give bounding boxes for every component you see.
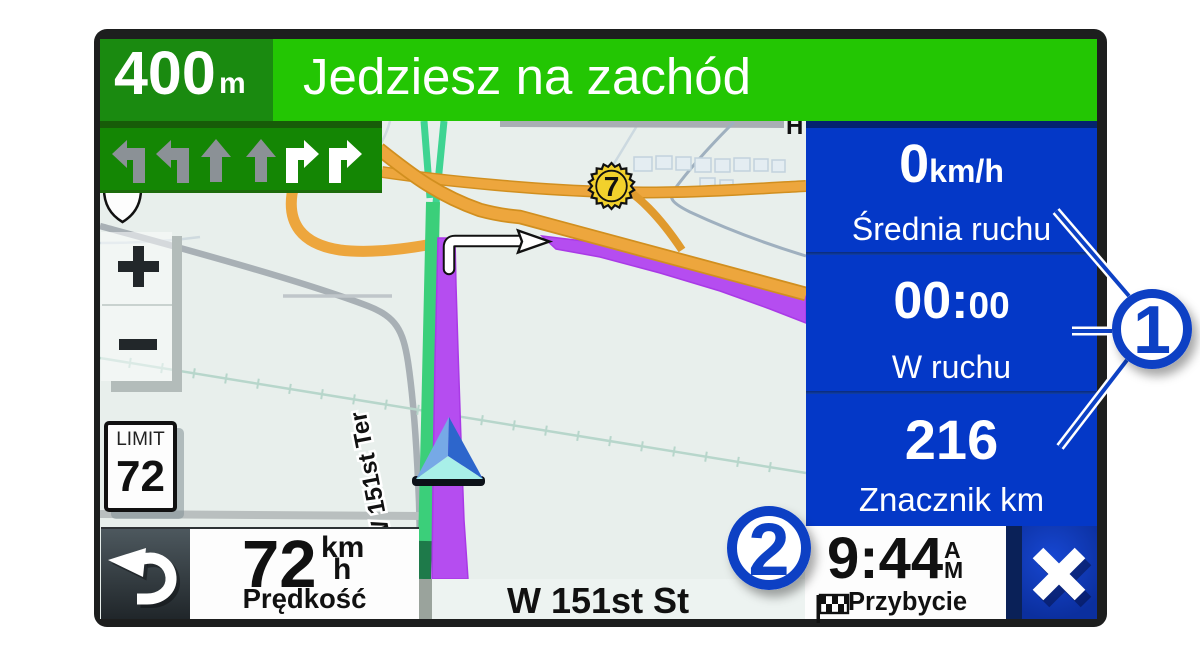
- svg-text:1: 1: [1133, 292, 1171, 368]
- svg-text:2: 2: [748, 508, 789, 591]
